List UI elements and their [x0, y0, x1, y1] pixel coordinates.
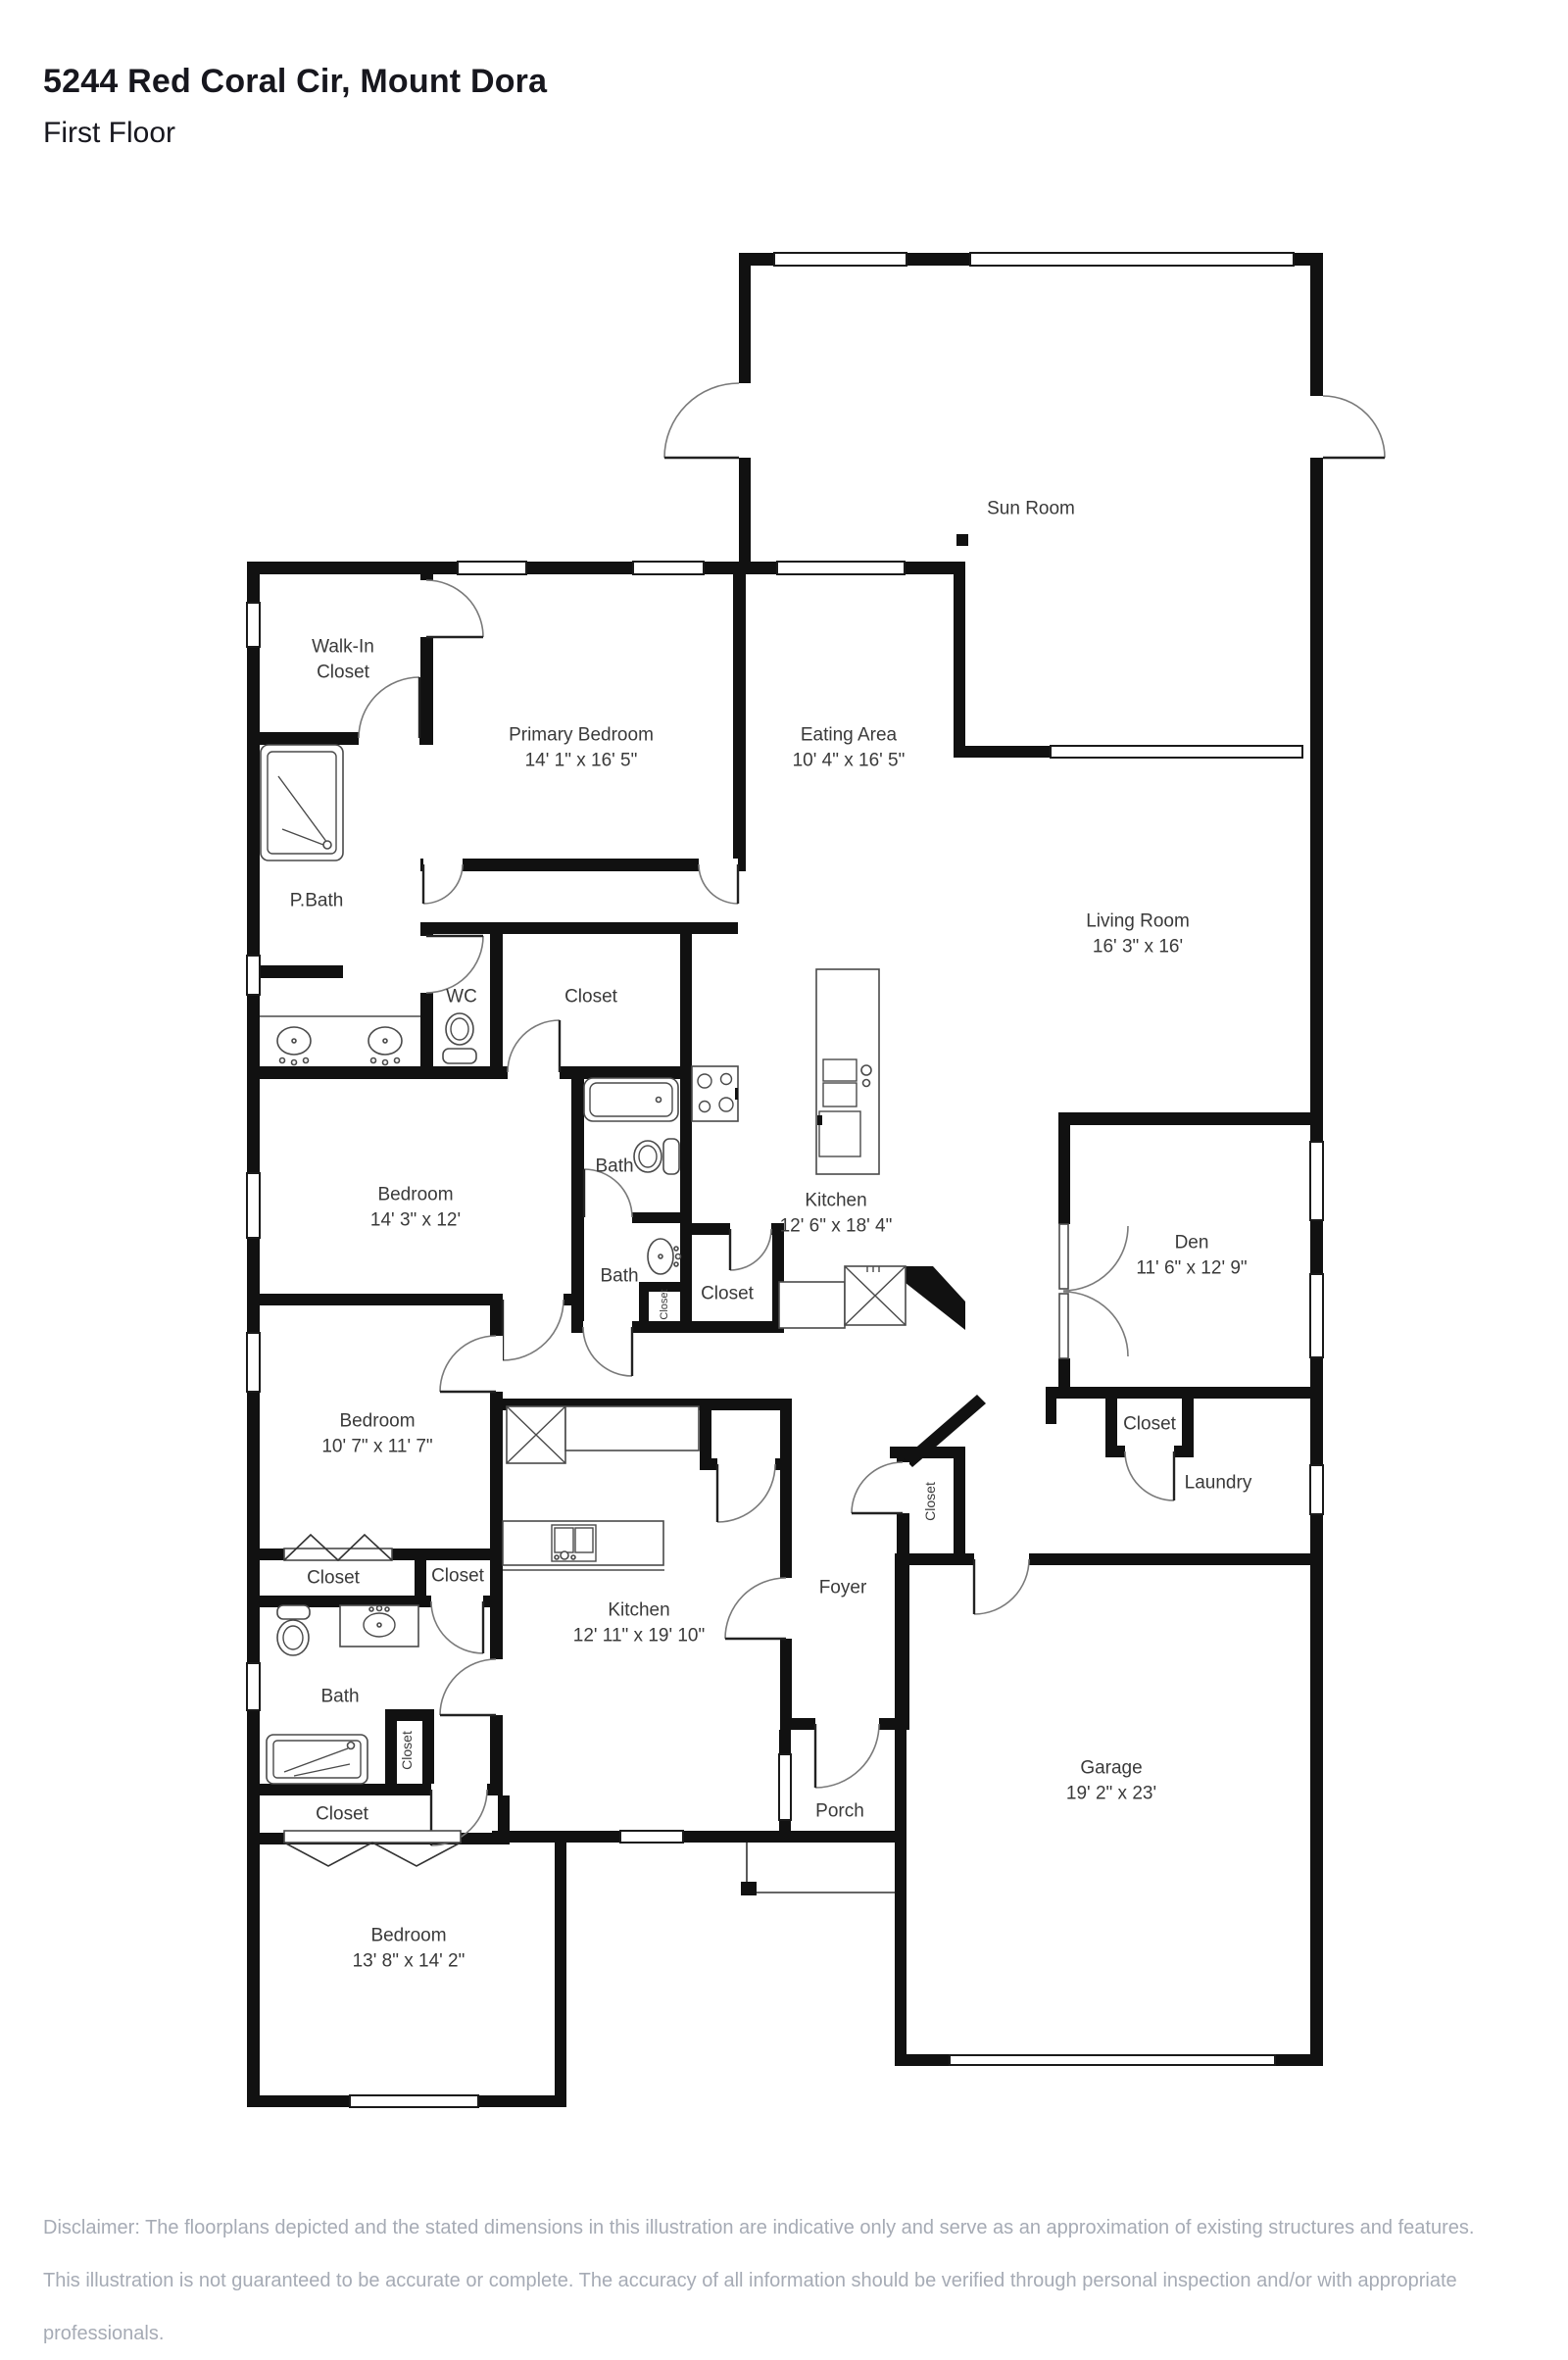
door-hall-closet	[508, 1020, 560, 1079]
dims-kitchen2: 12' 11" x 19' 10"	[573, 1626, 705, 1647]
label-walkin-2: Closet	[317, 663, 370, 683]
dims-bedroom1: 14' 3" x 12'	[370, 1210, 461, 1231]
window-icon	[350, 2095, 478, 2107]
label-living: Living Room	[1086, 911, 1190, 932]
door-closet-b	[717, 1458, 775, 1522]
dims-garage: 19' 2" x 23'	[1066, 1784, 1156, 1804]
window-icon	[247, 603, 260, 647]
dims-bedroom2: 10' 7" x 11' 7"	[321, 1437, 432, 1457]
toilet-bath1	[634, 1139, 679, 1174]
toilet-bath3	[277, 1605, 310, 1655]
toilet-wc	[443, 1013, 476, 1063]
label-pbath: P.Bath	[290, 891, 344, 911]
counter-kitchen2-top	[565, 1406, 699, 1450]
label-closet-d: Closet	[307, 1568, 361, 1589]
label-porch: Porch	[815, 1801, 864, 1822]
door-walkin-bottom	[359, 677, 419, 745]
label-closet-f: Closet	[399, 1731, 415, 1770]
window-icon	[247, 1173, 260, 1238]
dims-primary: 14' 1" x 16' 5"	[525, 751, 638, 771]
label-sunroom: Sun Room	[987, 499, 1075, 519]
label-foyer: Foyer	[819, 1578, 867, 1598]
porch-post	[741, 1882, 757, 1895]
label-bath3: Bath	[320, 1687, 359, 1707]
label-bath2: Bath	[600, 1266, 638, 1287]
sink-bath2	[648, 1239, 681, 1274]
bifold-closet-g	[284, 1831, 461, 1866]
label-closet-bath2: Closet	[659, 1289, 670, 1319]
label-wc: WC	[446, 987, 477, 1008]
bathtub-bath1	[584, 1078, 678, 1121]
disclaimer-line-1: Disclaimer: The floorplans depicted and …	[43, 2201, 1552, 2254]
window-icon	[247, 956, 260, 995]
door-kitchen2-foyer	[725, 1578, 792, 1639]
door-den-double	[1058, 1224, 1128, 1358]
walls-layer	[247, 253, 1323, 2107]
window-icon	[247, 1333, 260, 1392]
door-bath3	[440, 1659, 503, 1715]
window-icon	[633, 562, 704, 574]
door-front-entry	[815, 1718, 879, 1788]
label-laundry: Laundry	[1185, 1473, 1252, 1494]
counter-kitchen1	[779, 1266, 906, 1328]
label-bedroom1: Bedroom	[377, 1185, 453, 1205]
disclaimer-line-2: This illustration is not guaranteed to b…	[43, 2254, 1552, 2360]
window-icon	[970, 253, 1294, 266]
shower-bath3	[267, 1735, 367, 1784]
label-kitchen1: Kitchen	[805, 1191, 866, 1211]
window-icon	[1310, 1274, 1323, 1357]
door-bath2	[583, 1321, 632, 1376]
window-icon	[779, 1754, 791, 1820]
dims-kitchen1: 12' 6" x 18' 4"	[780, 1216, 893, 1237]
door-laundry-closet	[1125, 1446, 1174, 1500]
door-sunroom-right	[1310, 396, 1385, 458]
label-closet-c: Closet	[922, 1482, 938, 1521]
window-icon	[777, 562, 905, 574]
label-eating: Eating Area	[801, 725, 898, 746]
cooktop-kitchen1	[692, 1066, 738, 1121]
door-bedroom1	[503, 1294, 563, 1360]
window-icon	[247, 1663, 260, 1710]
door-garage-entry	[974, 1553, 1029, 1614]
label-closet-a: Closet	[701, 1284, 755, 1304]
bifold-closet-d	[284, 1535, 392, 1560]
vanity-pbath	[260, 1016, 420, 1065]
door-wc	[420, 936, 483, 993]
label-closet-e: Closet	[431, 1566, 485, 1587]
label-primary: Primary Bedroom	[509, 725, 654, 746]
window-icon	[620, 1831, 683, 1843]
label-closet-hall: Closet	[564, 987, 618, 1008]
garage-door-icon	[950, 2055, 1275, 2065]
label-bedroom3: Bedroom	[370, 1926, 446, 1946]
label-walkin-1: Walk-In	[312, 637, 374, 658]
disclaimer: Disclaimer: The floorplans depicted and …	[43, 2201, 1552, 2360]
dims-bedroom3: 13' 8" x 14' 2"	[353, 1951, 465, 1972]
floorplan-canvas: Sun Room Walk-In Closet Primary Bedroom …	[0, 0, 1568, 2300]
vanity-bath3	[340, 1605, 418, 1647]
island-kitchen1	[816, 969, 879, 1174]
window-icon	[1310, 1465, 1323, 1514]
dims-living: 16' 3" x 16'	[1093, 937, 1183, 958]
label-bedroom2: Bedroom	[339, 1411, 415, 1432]
door-primary-right	[699, 859, 738, 904]
label-bath1: Bath	[595, 1156, 633, 1177]
door-walkin-entry	[420, 580, 483, 637]
window-icon	[1310, 1142, 1323, 1220]
door-closet-a	[730, 1223, 771, 1270]
window-icon	[458, 562, 526, 574]
door-sunroom-left	[664, 383, 751, 458]
door-bedroom2	[440, 1336, 503, 1392]
porch-slab-edge	[747, 1843, 895, 1893]
dims-eating: 10' 4" x 16' 5"	[793, 751, 906, 771]
door-closet-c	[852, 1462, 909, 1513]
sink-counter-kitchen2	[503, 1521, 664, 1570]
door-closet-e	[431, 1596, 483, 1653]
label-garage: Garage	[1080, 1758, 1142, 1779]
pantry-kitchen2	[507, 1406, 565, 1463]
dims-den: 11' 6" x 12' 9"	[1136, 1258, 1247, 1279]
door-primary-left	[423, 859, 463, 904]
label-closet-g: Closet	[316, 1804, 369, 1825]
window-icon	[1051, 746, 1302, 758]
shower-pbath	[261, 745, 343, 860]
label-den: Den	[1175, 1233, 1209, 1254]
label-kitchen2: Kitchen	[608, 1600, 669, 1621]
label-closet-den: Closet	[1123, 1414, 1177, 1435]
door-bath1	[584, 1169, 632, 1223]
window-icon	[774, 253, 906, 266]
